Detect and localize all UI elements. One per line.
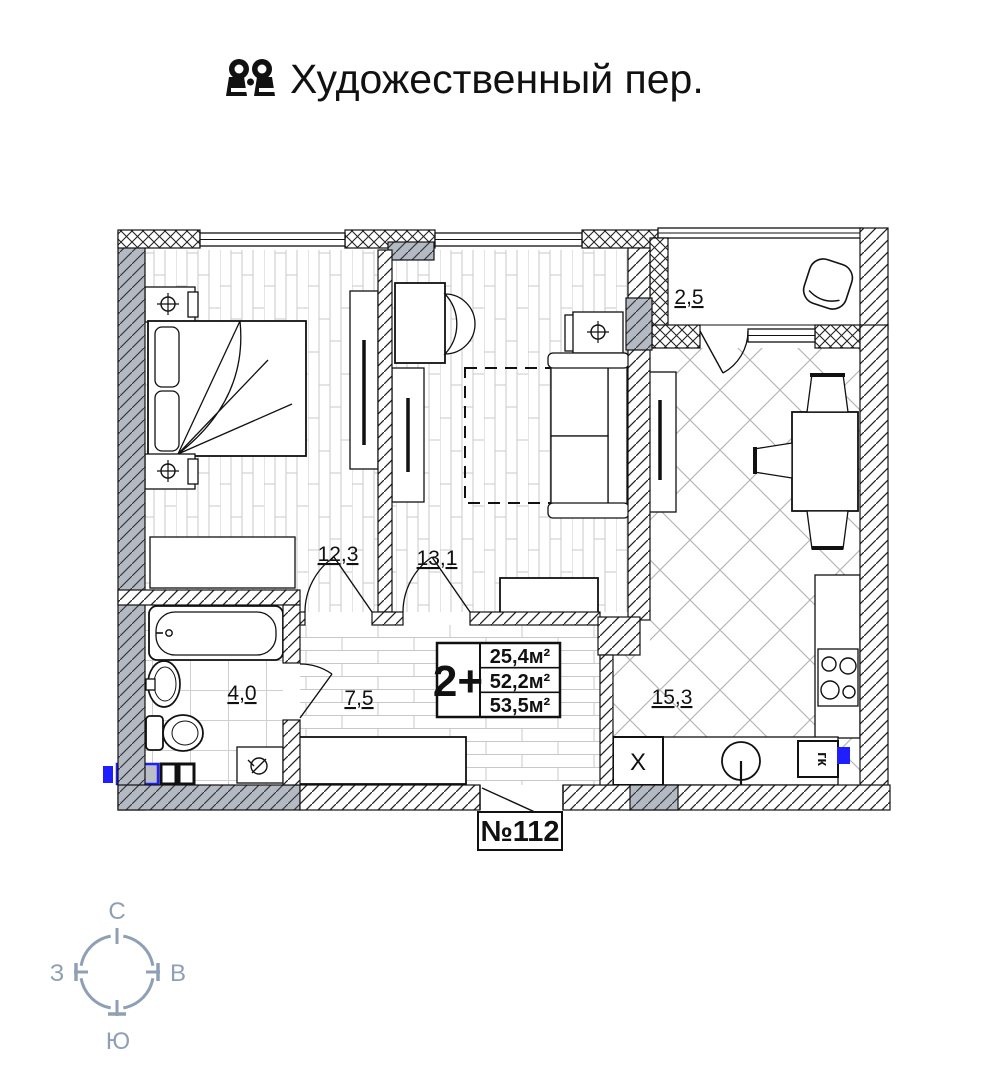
wall-balcony-right bbox=[860, 228, 888, 330]
wall-between-rooms bbox=[378, 250, 392, 612]
chair-left bbox=[754, 443, 792, 478]
header: Художественный пер. bbox=[226, 56, 704, 102]
total-area-value: 53,5м² bbox=[490, 695, 551, 717]
compass: С Ю З В bbox=[50, 898, 186, 1055]
wall-top bbox=[582, 230, 658, 248]
wall-left-exterior bbox=[118, 232, 145, 810]
dining-table bbox=[792, 412, 858, 511]
balcony-area-label: 2,5 bbox=[674, 286, 703, 309]
wall-top bbox=[118, 230, 200, 248]
binoculars-icon bbox=[226, 59, 276, 96]
nightstand-top bbox=[145, 287, 198, 322]
wall-balcony-bottom bbox=[815, 325, 860, 348]
wall-pier bbox=[388, 242, 434, 260]
desk bbox=[395, 283, 445, 363]
floor-plan-page: Художественный пер. bbox=[0, 0, 1000, 1067]
riser-box bbox=[161, 764, 176, 784]
wall-bathroom-right bbox=[283, 605, 300, 663]
floor-plan-image: Художественный пер. bbox=[0, 0, 1000, 1067]
sofa-side-table bbox=[565, 312, 623, 353]
wall-balcony-left bbox=[650, 238, 668, 330]
apartment-number: №112 bbox=[480, 816, 559, 848]
info-box: 2+ 25,4м² 52,2м² 53,5м² bbox=[433, 643, 560, 717]
apartment-area-value: 52,2м² bbox=[490, 671, 551, 693]
riser-blue-kitchen bbox=[837, 747, 850, 764]
compass-south: Ю bbox=[106, 1028, 130, 1055]
compass-north: С bbox=[108, 898, 125, 925]
dresser bbox=[500, 578, 598, 615]
wardrobe-bedroom bbox=[350, 291, 378, 469]
built-in-closet bbox=[150, 537, 295, 588]
wall-bottom bbox=[300, 785, 480, 810]
counter-right bbox=[815, 575, 860, 738]
wall-bottom bbox=[118, 785, 300, 810]
hall-wardrobe bbox=[295, 737, 466, 784]
washer-place bbox=[237, 747, 283, 783]
wall-bathroom-right bbox=[283, 720, 300, 785]
counter-bottom: Х гк bbox=[613, 737, 850, 786]
compass-west: З bbox=[50, 960, 65, 987]
rooms-count-label: 2+ bbox=[433, 657, 483, 706]
chair-top bbox=[807, 374, 848, 412]
double-bed bbox=[148, 321, 306, 456]
fridge-label: Х bbox=[630, 749, 646, 776]
bathtub bbox=[149, 606, 283, 660]
bathroom-area-label: 4,0 bbox=[227, 682, 256, 705]
chair-bottom bbox=[807, 511, 848, 549]
utility-risers bbox=[103, 764, 194, 784]
wall-kitchen-corner bbox=[598, 617, 640, 655]
wall-balcony-bottom bbox=[652, 325, 700, 348]
compass-ring bbox=[74, 928, 160, 1016]
wall-right-exterior bbox=[860, 325, 888, 790]
cooktop bbox=[818, 649, 858, 706]
hallway-furniture bbox=[295, 737, 466, 784]
toilet bbox=[146, 715, 203, 751]
wall-pier-kitchen bbox=[626, 298, 652, 350]
hallway-area-label: 7,5 bbox=[344, 687, 373, 710]
wall-kitchen-nook bbox=[600, 655, 613, 785]
riser-blue-small bbox=[103, 766, 113, 783]
wall-hall bbox=[372, 612, 403, 625]
living-window bbox=[435, 233, 582, 246]
riser-box bbox=[179, 764, 194, 784]
wall-pier-bottom bbox=[630, 785, 678, 810]
wardrobe-living bbox=[392, 368, 424, 502]
wall-hall bbox=[470, 612, 600, 625]
wall-bottom bbox=[563, 785, 890, 810]
kitchen-area-label: 15,3 bbox=[652, 686, 693, 709]
boiler-label: гк bbox=[814, 752, 831, 766]
apartment-number-box: №112 bbox=[478, 812, 562, 850]
living-area-value: 25,4м² bbox=[490, 646, 551, 668]
living-area-label: 13,1 bbox=[417, 547, 458, 570]
kitchen-window bbox=[748, 329, 815, 342]
bedroom-window bbox=[200, 233, 345, 246]
wall-bathroom-top bbox=[118, 590, 300, 605]
nightstand-bottom bbox=[145, 454, 198, 489]
sofa bbox=[548, 353, 629, 518]
compass-east: В bbox=[170, 960, 186, 987]
bedroom-area-label: 12,3 bbox=[318, 543, 359, 566]
page-title: Художественный пер. bbox=[290, 56, 704, 102]
